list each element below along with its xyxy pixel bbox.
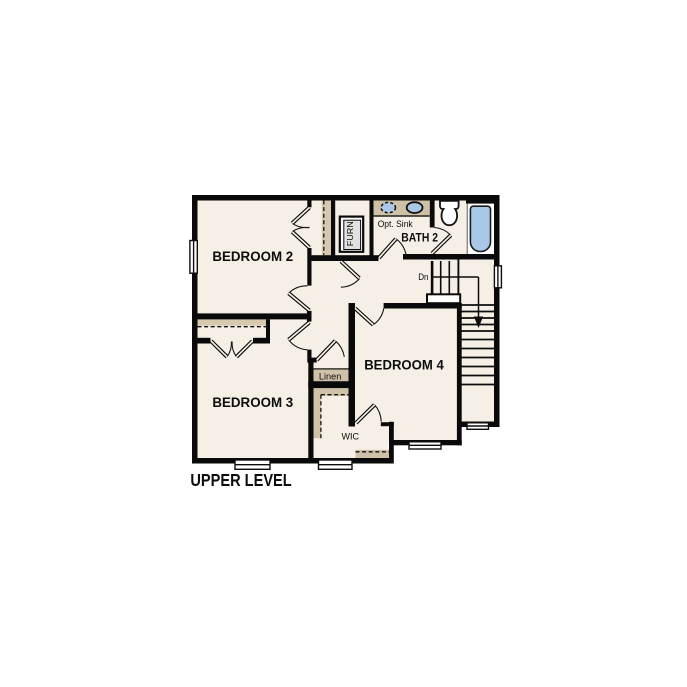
svg-text:BEDROOM 4: BEDROOM 4	[364, 357, 444, 373]
svg-text:BEDROOM 2: BEDROOM 2	[212, 249, 293, 265]
svg-text:BEDROOM 3: BEDROOM 3	[212, 395, 293, 411]
svg-text:Dn: Dn	[418, 272, 428, 282]
svg-text:FURN: FURN	[345, 221, 355, 246]
svg-text:BATH 2: BATH 2	[401, 231, 438, 245]
svg-text:UPPER LEVEL: UPPER LEVEL	[190, 470, 291, 490]
svg-text:WIC: WIC	[342, 431, 360, 442]
svg-text:Opt. Sink: Opt. Sink	[378, 219, 413, 230]
svg-text:Linen: Linen	[319, 371, 341, 381]
